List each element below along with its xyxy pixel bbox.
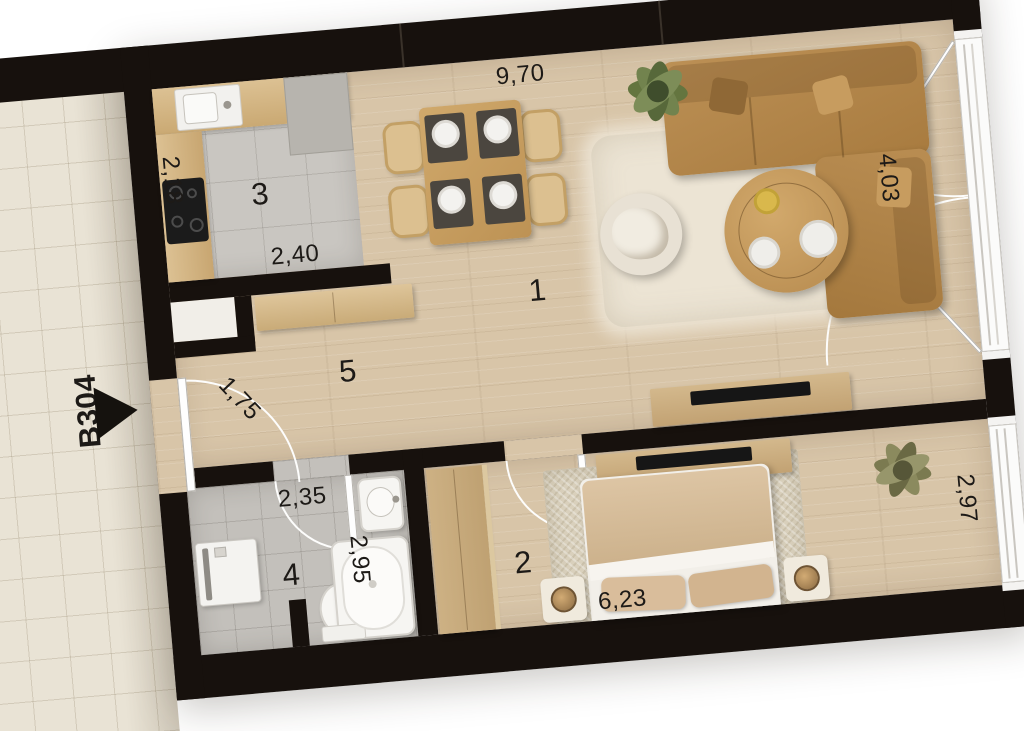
washing-machine-panel <box>214 547 227 558</box>
dim-bathroom-width: 2,35 <box>277 484 328 512</box>
dim-kitchen-depth: 2,18 <box>158 155 186 206</box>
room-label-living: 1 <box>527 274 547 306</box>
dim-bathroom-length: 2,95 <box>345 534 373 585</box>
kitchen-sink-basin <box>182 92 218 125</box>
room-label-hallway: 5 <box>338 355 358 387</box>
dim-balcony-door: 4,03 <box>874 153 902 204</box>
dim-bedroom-window: 2,97 <box>952 473 980 524</box>
kitchen-fridge <box>283 72 354 155</box>
niche-floor <box>170 297 237 342</box>
room-label-bedroom: 2 <box>513 546 533 578</box>
floor-plan-canvas: 1 2 3 4 5 9,70 2,18 2,40 4,03 1,75 2,35 … <box>0 0 1024 731</box>
dim-kitchen-width: 2,40 <box>270 241 321 269</box>
dim-living-width: 9,70 <box>495 61 546 89</box>
sofa-pillow <box>708 77 749 116</box>
dim-bedroom-width: 6,23 <box>597 586 648 614</box>
plant <box>614 48 701 135</box>
room-label-kitchen: 3 <box>250 178 270 210</box>
dining-chair <box>525 172 569 227</box>
plant <box>863 430 943 510</box>
entrance-arrow-icon <box>93 384 139 439</box>
room-label-bathroom: 4 <box>281 558 301 590</box>
dining-chair <box>519 108 563 163</box>
